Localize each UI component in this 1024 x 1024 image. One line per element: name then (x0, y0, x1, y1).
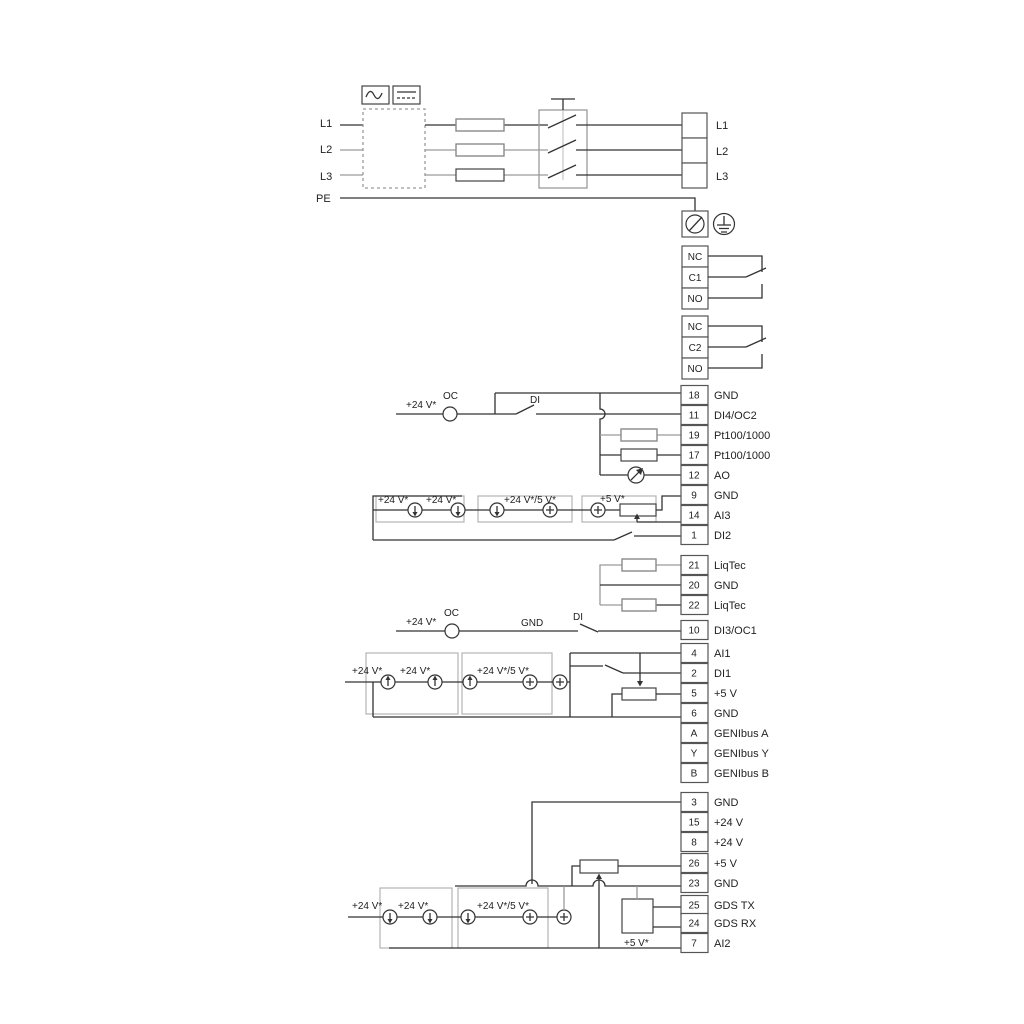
oc-label: OC (444, 608, 459, 619)
relay1-c1: C1 (689, 273, 702, 284)
terminal-label: DI4/OC2 (714, 410, 757, 422)
terminal-no: 24 (688, 919, 700, 930)
terminal-no: 4 (691, 649, 697, 660)
terminal-label: GND (714, 490, 739, 502)
terminal-no: Y (691, 749, 698, 760)
terminal-no: 10 (688, 626, 700, 637)
terminal-label: GENIbus B (714, 768, 769, 780)
power-terminal-block: L1 L2 L3 (682, 113, 728, 188)
dc-symbol-box (393, 86, 420, 104)
terminal-cell (682, 113, 707, 138)
earth-symbol (714, 214, 735, 235)
terminal-no: 19 (688, 431, 700, 442)
terminal-label: GENIbus A (714, 728, 769, 740)
fuse-l2 (456, 144, 504, 156)
terminal-label: +24 V (714, 817, 744, 829)
terminal-label: DI1 (714, 668, 731, 680)
terminal-label: Pt100/1000 (714, 450, 770, 462)
terminal-label: GND (714, 797, 739, 809)
cable-screen-symbol (682, 211, 708, 237)
terminal-label: GND (714, 878, 739, 890)
terminal-no: 18 (688, 391, 700, 402)
out-label-l3: L3 (716, 171, 728, 183)
terminal-label: GDS TX (714, 900, 755, 912)
terminal-no: 11 (689, 411, 700, 422)
v24-label: +24 V* (398, 901, 428, 912)
terminal-label: DI2 (714, 530, 731, 542)
relay2-c2: C2 (689, 343, 702, 354)
terminal-label: GND (714, 580, 739, 592)
relay1-no: NO (688, 294, 703, 305)
terminal-label: AI2 (714, 938, 731, 950)
out-label-l2: L2 (716, 146, 728, 158)
terminal-label: DI3/OC1 (714, 625, 757, 637)
gds-sensor-box (622, 899, 653, 933)
terminal-no: 3 (691, 798, 697, 809)
v24-label: +24 V* (352, 901, 382, 912)
v24v5-label: +24 V*/5 V* (477, 901, 529, 912)
terminal-label: Pt100/1000 (714, 430, 770, 442)
terminal-no: 8 (691, 838, 697, 849)
background (0, 0, 1024, 1024)
terminal-no: 2 (691, 669, 697, 680)
terminal-label: AI1 (714, 648, 731, 660)
v24v5-label: +24 V*/5 V* (477, 666, 529, 677)
terminal-no: 26 (688, 859, 700, 870)
terminal-no: 15 (688, 818, 700, 829)
terminal-no: 6 (691, 709, 697, 720)
out-label-l1: L1 (716, 120, 728, 132)
terminal-no: 23 (688, 879, 700, 890)
v24-label: +24 V* (352, 666, 382, 677)
potentiometer (580, 860, 618, 873)
terminal-no: 7 (691, 939, 697, 950)
di-label: DI (530, 395, 540, 406)
terminal-label: LiqTec (714, 600, 746, 612)
v24-label: +24 V* (400, 666, 430, 677)
terminal-no: 25 (688, 901, 700, 912)
v5-label: +5 V* (600, 494, 625, 505)
terminal-no: B (691, 769, 698, 780)
mains-label-l2: L2 (320, 144, 332, 156)
terminal-no: 22 (688, 601, 700, 612)
pt100-sensor-1 (621, 429, 657, 441)
mains-label-pe: PE (316, 193, 331, 205)
di-label: DI (573, 612, 583, 623)
mains-label-l1: L1 (320, 118, 332, 130)
terminal-label: +5 V (714, 688, 738, 700)
fuse-l3 (456, 169, 504, 181)
terminal-no: 9 (691, 491, 697, 502)
terminal-label: GENIbus Y (714, 748, 769, 760)
relay1-nc: NC (688, 252, 702, 263)
v24-label: +24 V* (406, 400, 436, 411)
pump-wiring-diagram: L1 L2 L3 PE (0, 0, 1024, 1024)
fuse-l1 (456, 119, 504, 131)
terminal-cell (682, 163, 707, 188)
liqtec-sensor-1 (622, 559, 656, 571)
oc-label: OC (443, 391, 458, 402)
pt100-sensor-2 (621, 449, 657, 461)
terminal-label: GDS RX (714, 918, 757, 930)
terminal-no: 20 (688, 581, 700, 592)
open-collector-node (445, 624, 459, 638)
relay2-no: NO (688, 364, 703, 375)
wiring-diagram-page: L1 L2 L3 PE (0, 0, 1024, 1024)
gnd-label: GND (521, 618, 543, 629)
liqtec-sensor-2 (622, 599, 656, 611)
v24-label: +24 V* (406, 617, 436, 628)
mains-label-l3: L3 (320, 171, 332, 183)
relay2-nc: NC (688, 322, 702, 333)
terminal-label: LiqTec (714, 560, 746, 572)
terminal-label: +24 V (714, 837, 744, 849)
ac-symbol-box (362, 86, 389, 104)
terminal-no: 21 (688, 561, 700, 572)
terminal-label: AI3 (714, 510, 731, 522)
terminal-no: 12 (688, 471, 700, 482)
terminal-no: 17 (688, 451, 700, 462)
potentiometer (622, 688, 656, 700)
open-collector-node (443, 407, 457, 421)
terminal-label: +5 V (714, 858, 738, 870)
terminal-label: GND (714, 708, 739, 720)
terminal-no: 1 (691, 531, 697, 542)
terminal-no: 5 (691, 689, 697, 700)
terminal-no: 14 (688, 511, 700, 522)
terminal-no: A (691, 729, 698, 740)
terminal-label: AO (714, 470, 730, 482)
potentiometer (620, 504, 656, 516)
terminal-cell (682, 138, 707, 163)
terminal-label: GND (714, 390, 739, 402)
